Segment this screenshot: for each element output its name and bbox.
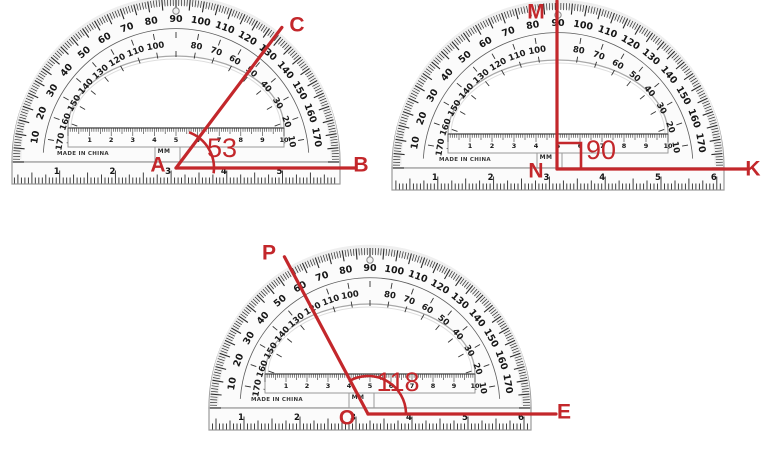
cm-number: 5 [368, 382, 373, 390]
cm-number: 8 [431, 382, 436, 390]
outer-scale-number: 10 [409, 135, 422, 150]
point-label-M: M [527, 1, 545, 24]
outer-scale-number: 90 [169, 14, 183, 25]
cm-number: 3 [131, 136, 136, 144]
inch-number: 2 [488, 173, 494, 183]
cm-number: 2 [109, 136, 114, 144]
angle-measure-label: 53 [207, 133, 237, 163]
outer-scale-number: 80 [144, 15, 159, 28]
hanging-hole [173, 8, 179, 14]
inner-scale-number: 80 [383, 290, 396, 302]
angle-measure-label: 118 [376, 367, 419, 397]
point-label-C: C [289, 14, 304, 37]
outer-scale-number: 10 [226, 376, 239, 391]
point-label-A: A [150, 154, 165, 177]
cm-number: 8 [622, 142, 627, 150]
cm-number: 8 [239, 136, 244, 144]
cm-number: 2 [490, 142, 495, 150]
inch-number: 1 [54, 167, 60, 177]
outer-scale-number: 10 [29, 129, 42, 144]
cm-number: 4 [152, 136, 157, 144]
cm-number: 1 [284, 382, 289, 390]
hanging-hole [367, 257, 373, 263]
point-label-O: O [339, 407, 355, 430]
point-label-P: P [262, 242, 276, 265]
point-label-K: K [745, 158, 760, 181]
cm-number: 9 [644, 142, 649, 150]
inner-scale-number: 80 [190, 41, 203, 53]
cm-number: 9 [260, 136, 265, 144]
inch-number: 3 [165, 167, 171, 177]
inch-number: 1 [432, 173, 438, 183]
inch-number: 2 [294, 413, 300, 423]
inch-number: 3 [543, 173, 549, 183]
cm-number: 2 [305, 382, 310, 390]
cm-number: 10 [279, 136, 289, 144]
point-label-E: E [557, 401, 571, 424]
cm-number: 3 [326, 382, 331, 390]
inch-number: 5 [655, 173, 661, 183]
cm-number: 1 [87, 136, 92, 144]
inch-number: 6 [711, 173, 717, 183]
protractor-worksheet: 1020304050607080901001101201301401501601… [0, 0, 767, 454]
protractor-scene: 1020304050607080901001101201301401501601… [0, 0, 767, 454]
inch-ruler-strip [392, 168, 724, 190]
point-label-B: B [353, 154, 368, 177]
cm-number: 10 [663, 142, 673, 150]
outer-scale-number: 90 [363, 263, 377, 274]
outer-scale-number: 80 [338, 264, 353, 277]
cm-number: 10 [470, 382, 480, 390]
made-in-china-label: MADE IN CHINA [439, 157, 491, 163]
cm-number: 4 [534, 142, 539, 150]
cm-number: 1 [468, 142, 473, 150]
inch-number: 1 [238, 413, 244, 423]
inch-number: 4 [599, 173, 605, 183]
made-in-china-label: MADE IN CHINA [57, 151, 109, 157]
angle-measure-label: 90 [586, 135, 616, 165]
protractor-3: 1020304050607080901001101201301401501601… [209, 247, 531, 430]
made-in-china-label: MADE IN CHINA [251, 397, 303, 403]
inch-ruler-strip [12, 162, 340, 184]
point-label-N: N [528, 160, 543, 183]
inner-scale-number: 80 [572, 45, 585, 57]
cm-number: 5 [174, 136, 179, 144]
cm-number: 3 [512, 142, 517, 150]
cm-number: 9 [452, 382, 457, 390]
inch-number: 2 [109, 167, 115, 177]
